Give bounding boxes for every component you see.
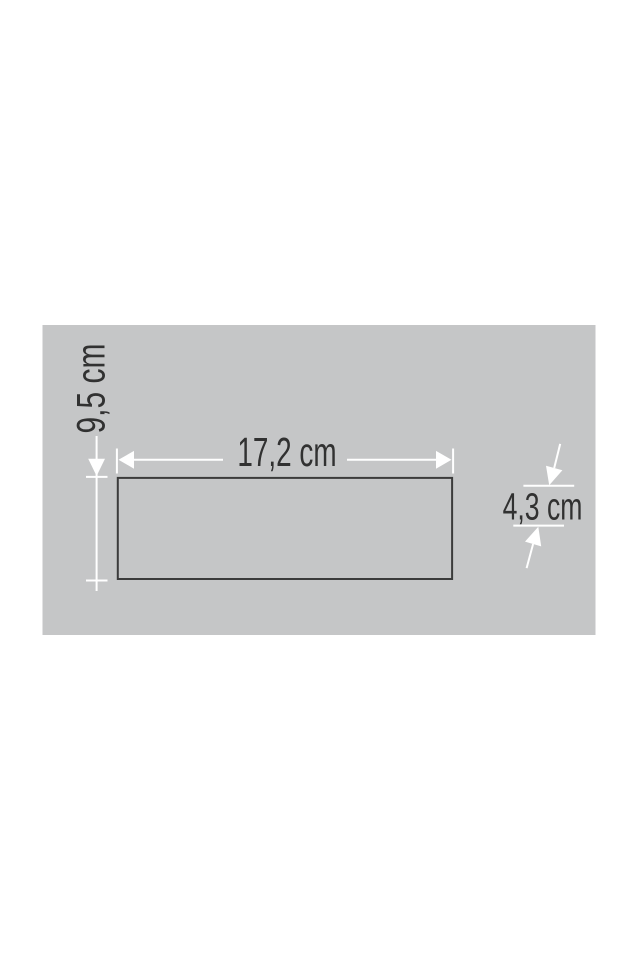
- svg-text:4,3 cm: 4,3 cm: [503, 485, 583, 528]
- svg-text:9,5 cm: 9,5 cm: [69, 343, 113, 433]
- svg-text:17,2 cm: 17,2 cm: [237, 430, 336, 476]
